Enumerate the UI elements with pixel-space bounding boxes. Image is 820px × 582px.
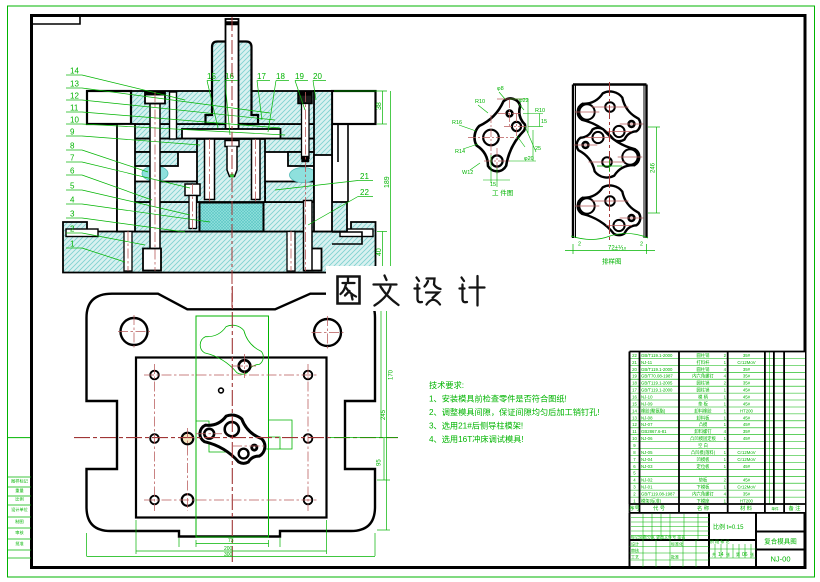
svg-text:15: 15	[632, 401, 637, 406]
svg-text:15: 15	[490, 182, 496, 188]
svg-text:审核: 审核	[631, 547, 639, 553]
svg-text:批准: 批准	[15, 540, 23, 547]
svg-text:14: 14	[70, 67, 79, 76]
svg-text:45#: 45#	[743, 436, 751, 441]
svg-text:1: 1	[70, 240, 75, 249]
svg-text:备 注: 备 注	[788, 504, 801, 512]
svg-text:标准化: 标准化	[671, 541, 683, 547]
svg-text:卸料板: 卸料板	[697, 414, 711, 421]
svg-text:20: 20	[632, 367, 637, 372]
svg-text:45#: 45#	[743, 464, 751, 469]
svg-text:HT200: HT200	[740, 499, 754, 504]
svg-text:17: 17	[632, 388, 637, 393]
svg-text:NJ-08: NJ-08	[641, 415, 653, 420]
svg-text:圆柱销: 圆柱销	[697, 352, 711, 359]
svg-text:17: 17	[257, 72, 266, 81]
svg-text:19: 19	[295, 72, 304, 81]
svg-text:4: 4	[70, 196, 75, 205]
svg-text:内六角螺钉: 内六角螺钉	[692, 491, 714, 498]
svg-text:38: 38	[376, 102, 383, 110]
svg-text:95: 95	[377, 459, 383, 466]
svg-text:标记处数分区 更改文件号 签名: 标记处数分区 更改文件号 签名	[631, 534, 685, 540]
svg-text:245: 245	[381, 409, 387, 420]
svg-text:35#: 35#	[743, 374, 751, 379]
svg-text:2: 2	[640, 242, 643, 248]
svg-text:19: 19	[632, 374, 637, 379]
svg-text:3: 3	[70, 210, 75, 219]
svg-text:45#: 45#	[743, 422, 751, 427]
svg-text:06: 06	[742, 552, 748, 558]
svg-text:15: 15	[207, 72, 216, 81]
svg-text:卸料螺钉: 卸料螺钉	[694, 428, 712, 435]
svg-text:35#: 35#	[743, 367, 751, 372]
svg-text:8: 8	[70, 142, 75, 151]
svg-text:W12: W12	[462, 170, 473, 176]
svg-text:45#: 45#	[743, 388, 751, 393]
svg-text:22: 22	[632, 353, 637, 358]
svg-text:Cr12MoV: Cr12MoV	[737, 457, 755, 462]
svg-text:5: 5	[70, 182, 75, 191]
svg-text:代 号: 代 号	[653, 504, 665, 512]
svg-text:名 称: 名 称	[697, 504, 710, 512]
svg-text:13: 13	[632, 415, 637, 420]
svg-text:橡胶(聚氨酯): 橡胶(聚氨酯)	[641, 407, 666, 414]
svg-text:第: 第	[736, 551, 740, 557]
svg-text:圆柱销: 圆柱销	[697, 380, 711, 387]
svg-text:20: 20	[313, 72, 322, 81]
svg-text:Cr12MoV: Cr12MoV	[737, 450, 755, 455]
svg-text:R16: R16	[452, 120, 462, 126]
svg-text:张: 张	[726, 551, 730, 557]
svg-text:10: 10	[70, 116, 79, 125]
svg-text:工艺: 工艺	[631, 555, 639, 560]
svg-text:35#: 35#	[743, 429, 751, 434]
svg-text:189: 189	[384, 176, 391, 188]
svg-text:下模板: 下模板	[697, 484, 711, 491]
svg-text:Cr12MoV: Cr12MoV	[737, 360, 755, 365]
svg-text:NJ-11: NJ-11	[641, 360, 653, 365]
svg-text:NJ-01: NJ-01	[641, 485, 653, 490]
svg-text:21: 21	[360, 172, 369, 181]
svg-text:7: 7	[70, 154, 75, 163]
svg-text:9: 9	[70, 128, 75, 137]
svg-text:2、调整模具间隙，保证间隙均匀后加工销钉孔!: 2、调整模具间隙，保证间隙均匀后加工销钉孔!	[429, 407, 600, 417]
svg-text:11: 11	[70, 104, 79, 113]
svg-text:R10: R10	[535, 108, 545, 114]
svg-text:35#: 35#	[743, 353, 751, 358]
svg-text:2: 2	[578, 242, 581, 248]
svg-text:图样标记: 图样标记	[11, 478, 29, 485]
svg-text:45#: 45#	[743, 478, 751, 483]
svg-text:12: 12	[632, 422, 637, 427]
svg-text:NJ-07: NJ-07	[641, 422, 653, 427]
svg-text:张: 张	[750, 551, 754, 557]
svg-text:GB/T119.1-2000: GB/T119.1-2000	[641, 388, 673, 393]
svg-text:3、选用21#后侧导柱模架!: 3、选用21#后侧导柱模架!	[429, 421, 523, 431]
svg-text:序号: 序号	[629, 504, 640, 512]
svg-text:圆柱销: 圆柱销	[697, 387, 711, 394]
svg-text:18: 18	[632, 381, 637, 386]
svg-text:圆柱销: 圆柱销	[697, 366, 711, 373]
svg-text:21: 21	[632, 360, 637, 365]
svg-text:垫 板: 垫 板	[698, 400, 708, 407]
svg-text:卸料橡胶: 卸料橡胶	[694, 407, 712, 414]
svg-text:NJ-06: NJ-06	[641, 436, 653, 441]
svg-text:35#: 35#	[743, 381, 751, 386]
svg-text:复合模具图: 复合模具图	[764, 537, 797, 546]
svg-text:垫板: 垫板	[699, 477, 708, 484]
svg-text:单件: 单件	[771, 506, 779, 511]
svg-text:16: 16	[225, 72, 234, 81]
svg-text:4、选用16T冲床调试模具!: 4、选用16T冲床调试模具!	[429, 434, 524, 444]
svg-text:246: 246	[651, 162, 657, 173]
svg-text:Cr12MoV: Cr12MoV	[737, 485, 755, 490]
svg-text:比例: 比例	[15, 496, 23, 503]
svg-text:设计单位: 设计单位	[11, 506, 28, 513]
svg-text:NJ-00: NJ-00	[770, 555, 790, 564]
svg-text:共: 共	[712, 551, 716, 557]
svg-text:φ20: φ20	[524, 156, 534, 162]
svg-text:R10: R10	[475, 99, 485, 105]
svg-text:模 柄: 模 柄	[698, 394, 708, 401]
svg-text:GB/T119.1-2005: GB/T119.1-2005	[641, 381, 673, 386]
svg-text:6: 6	[70, 167, 75, 176]
svg-text:NJ-04: NJ-04	[641, 457, 653, 462]
svg-text:16: 16	[632, 395, 637, 400]
svg-text:25: 25	[535, 146, 541, 152]
svg-text:35#: 35#	[743, 492, 751, 497]
svg-text:GB/T119.1-2000: GB/T119.1-2000	[641, 367, 673, 372]
svg-text:NJ-03: NJ-03	[641, 464, 653, 469]
svg-text:18: 18	[276, 72, 285, 81]
svg-text:凸凹模固定板: 凸凹模固定板	[690, 435, 716, 442]
svg-text:工 件图: 工 件图	[492, 188, 513, 197]
svg-text:14: 14	[718, 552, 724, 558]
svg-text:内六角螺钉: 内六角螺钉	[692, 373, 714, 380]
svg-text:排样图: 排样图	[602, 257, 622, 266]
svg-text:打料杆: 打料杆	[697, 359, 711, 366]
svg-text:45#: 45#	[743, 395, 751, 400]
svg-text:45#: 45#	[743, 415, 751, 420]
svg-text:凸模: 凸模	[699, 421, 708, 428]
svg-text:模架(标准): 模架(标准)	[641, 498, 662, 505]
svg-text:定位板: 定位板	[697, 463, 711, 470]
svg-text:NJ-09: NJ-09	[641, 401, 653, 406]
svg-text:40: 40	[376, 248, 383, 256]
svg-text:73: 73	[228, 538, 234, 544]
svg-text:凸凹模(落料): 凸凹模(落料)	[691, 449, 716, 456]
svg-text:10: 10	[632, 436, 637, 441]
svg-text:材 料: 材 料	[740, 504, 753, 512]
svg-text:22: 22	[360, 188, 369, 197]
svg-text:GB2867.6-81: GB2867.6-81	[641, 429, 667, 434]
svg-text:阶 段 标 记: 阶 段 标 记	[710, 538, 729, 544]
svg-text:批准: 批准	[671, 554, 679, 560]
svg-text:2: 2	[70, 225, 75, 234]
svg-text:72±⅒: 72±⅒	[608, 246, 627, 252]
svg-text:13: 13	[70, 80, 79, 89]
svg-text:45#: 45#	[743, 401, 751, 406]
svg-text:审核: 审核	[15, 529, 24, 536]
svg-text:R14: R14	[455, 149, 465, 155]
svg-text:12: 12	[70, 92, 79, 101]
svg-text:φ8: φ8	[497, 86, 504, 92]
svg-text:下模座: 下模座	[697, 498, 711, 505]
svg-text:15: 15	[541, 119, 547, 125]
svg-text:技术要求:: 技术要求:	[429, 380, 464, 390]
svg-text:φ22: φ22	[519, 98, 529, 104]
svg-text:1、安装模具前检查零件是否符合图纸!: 1、安装模具前检查零件是否符合图纸!	[429, 394, 567, 404]
svg-text:重量: 重量	[15, 487, 23, 494]
svg-text:NJ-05: NJ-05	[641, 450, 653, 455]
svg-text:制图: 制图	[15, 518, 23, 525]
svg-text:GB/T119.08-1987: GB/T119.08-1987	[641, 492, 675, 497]
svg-text:空 白: 空 白	[698, 442, 708, 449]
svg-text:凹模板: 凹模板	[697, 456, 711, 463]
svg-text:GB/T70.08-1987: GB/T70.08-1987	[641, 374, 673, 379]
svg-text:设计: 设计	[631, 541, 639, 547]
svg-text:11: 11	[632, 429, 637, 434]
svg-text:NJ-10: NJ-10	[641, 395, 653, 400]
svg-text:HT200: HT200	[740, 408, 754, 413]
svg-text:170: 170	[389, 369, 395, 380]
svg-text:14: 14	[632, 408, 637, 413]
svg-text:NJ-02: NJ-02	[641, 478, 653, 483]
svg-text:比例 t=0.15: 比例 t=0.15	[713, 523, 744, 531]
svg-text:300: 300	[224, 552, 233, 558]
svg-text:GB/T119.1-2000: GB/T119.1-2000	[641, 353, 673, 358]
